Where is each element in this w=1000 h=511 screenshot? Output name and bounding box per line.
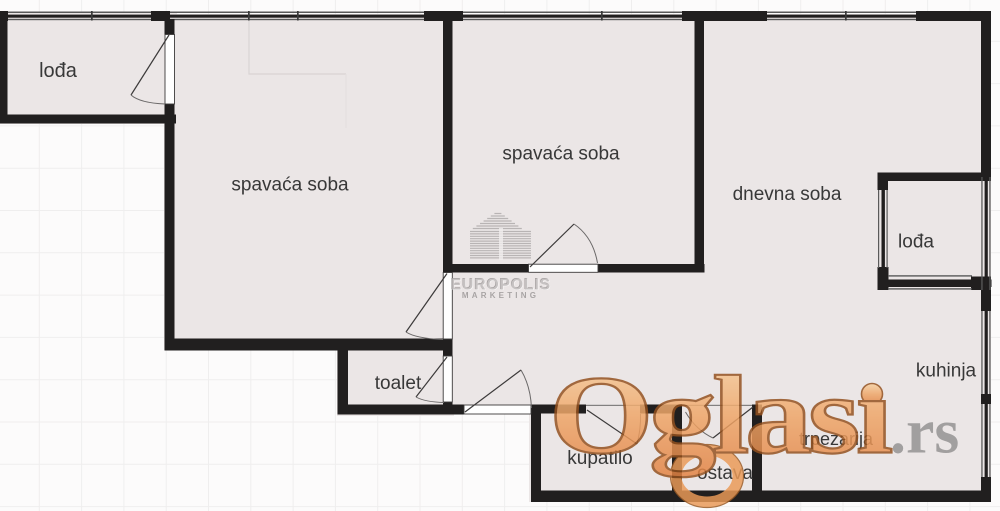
svg-text:.rs: .rs — [890, 396, 959, 467]
svg-text:spavaća soba: spavaća soba — [231, 175, 349, 196]
svg-text:dnevna soba: dnevna soba — [733, 184, 842, 205]
svg-text:kuhinja: kuhinja — [916, 361, 977, 382]
svg-text:spavaća soba: spavaća soba — [502, 144, 620, 165]
svg-text:MARKETING: MARKETING — [462, 291, 539, 300]
svg-text:lođa: lođa — [39, 60, 78, 82]
svg-text:lođa: lođa — [898, 232, 934, 253]
svg-text:Oglası: Oglası — [549, 353, 892, 477]
svg-text:toalet: toalet — [375, 373, 422, 394]
